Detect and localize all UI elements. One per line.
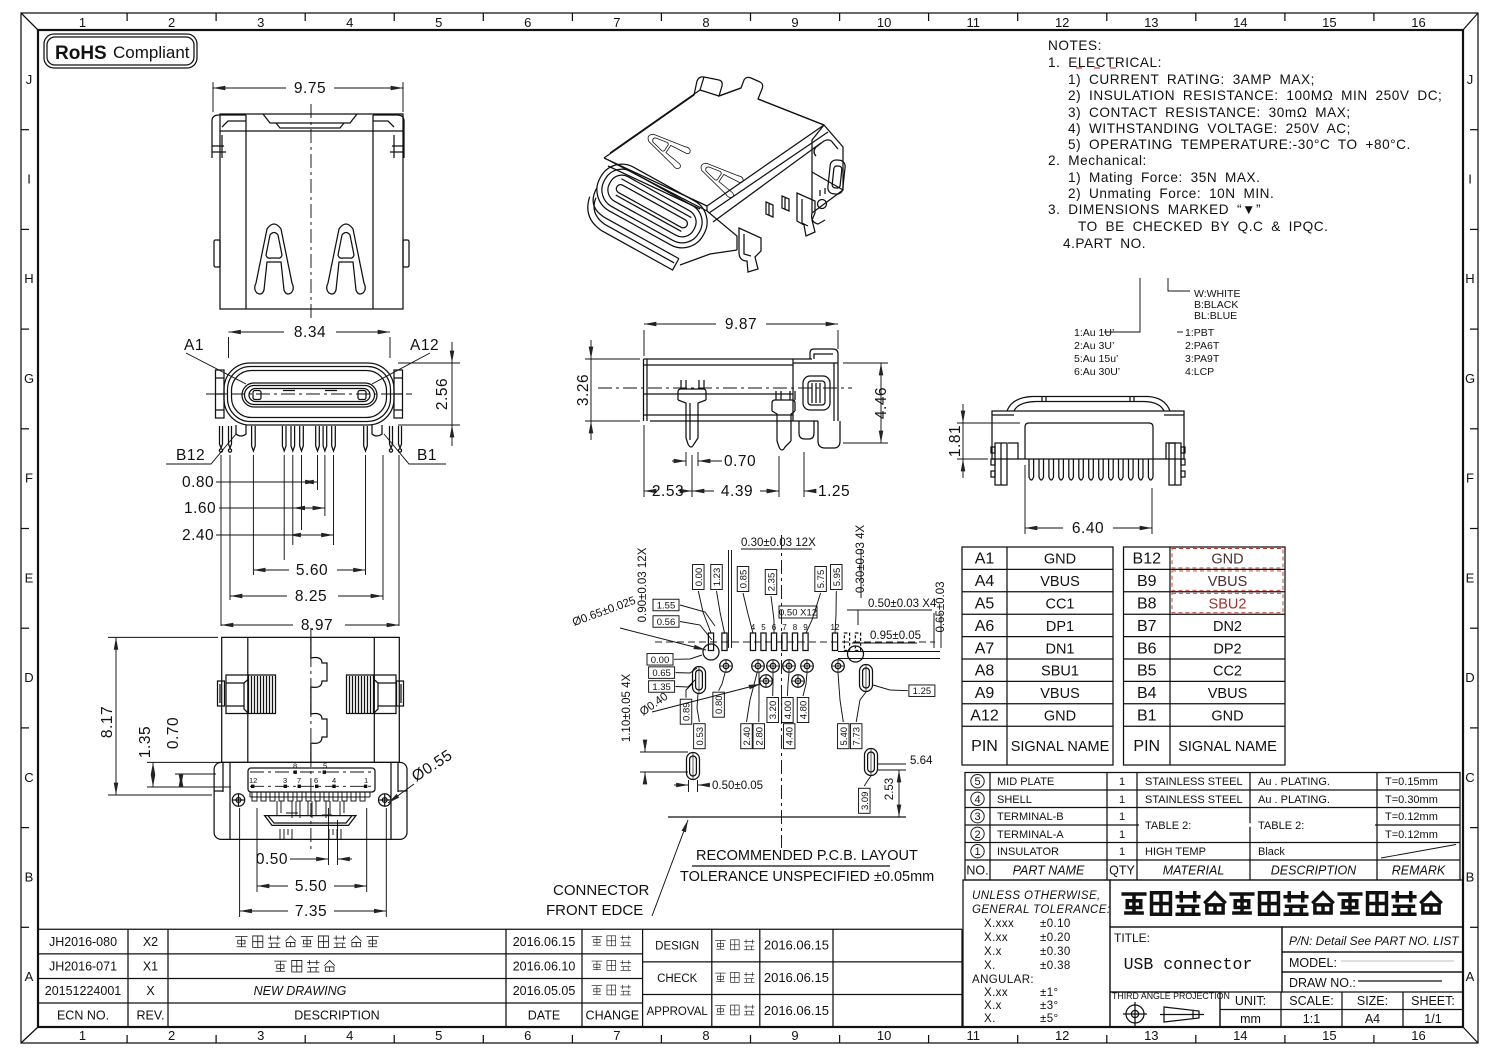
svg-text:B8: B8 — [1137, 596, 1157, 613]
svg-text:B1: B1 — [417, 447, 437, 464]
svg-text:4) WITHSTANDING VOLTAGE: 250V: 4) WITHSTANDING VOLTAGE: 250V AC; — [1068, 121, 1351, 136]
svg-text:CHANGE: CHANGE — [586, 1009, 639, 1023]
svg-text:0.00: 0.00 — [694, 568, 705, 587]
svg-text:5: 5 — [974, 776, 980, 788]
svg-text:FRONT EDCE: FRONT EDCE — [546, 902, 643, 919]
svg-text:UNLESS OTHERWISE,: UNLESS OTHERWISE, — [972, 890, 1101, 902]
svg-text:SIZE:: SIZE: — [1357, 994, 1388, 1008]
svg-text:PIN: PIN — [971, 738, 998, 755]
svg-text:0.65: 0.65 — [652, 668, 671, 679]
svg-text:RECOMMENDED P.C.B. LAYOUT: RECOMMENDED P.C.B. LAYOUT — [696, 848, 918, 864]
svg-text:3: 3 — [974, 811, 980, 823]
svg-text:ECN NO.: ECN NO. — [57, 1009, 109, 1023]
svg-text:P/N: Detail See PART NO. LIST: P/N: Detail See PART NO. LIST — [1289, 934, 1460, 948]
svg-text:HIGH TEMP: HIGH TEMP — [1145, 846, 1206, 858]
svg-text:Au . PLATING.: Au . PLATING. — [1258, 794, 1330, 806]
svg-text:9.75: 9.75 — [294, 80, 326, 97]
svg-text:B: B — [25, 870, 34, 885]
svg-text:8: 8 — [702, 1028, 709, 1043]
svg-text:T=0.15mm: T=0.15mm — [1385, 776, 1438, 788]
svg-text:8.97: 8.97 — [301, 617, 333, 634]
svg-text:1.35: 1.35 — [137, 726, 154, 758]
svg-text:7.73: 7.73 — [852, 727, 863, 746]
svg-text:0.95±0.05: 0.95±0.05 — [870, 630, 921, 642]
svg-text:G: G — [1465, 371, 1475, 386]
svg-text:11: 11 — [966, 15, 980, 30]
svg-text:5.60: 5.60 — [296, 562, 328, 579]
svg-text:3: 3 — [257, 1028, 264, 1043]
svg-text:0.56: 0.56 — [657, 617, 676, 628]
svg-text:1:Au 1U’: 1:Au 1U’ — [1074, 327, 1114, 339]
svg-text:1: 1 — [1119, 776, 1125, 788]
svg-text:THIRD ANGLE PROJECTION: THIRD ANGLE PROJECTION — [1112, 991, 1230, 1001]
svg-text:DATE: DATE — [528, 1009, 560, 1023]
svg-text:REV.: REV. — [136, 1009, 164, 1023]
svg-text:DN2: DN2 — [1213, 619, 1242, 635]
svg-text:GND: GND — [1211, 552, 1243, 568]
svg-text:GND: GND — [1211, 709, 1243, 725]
svg-text:USB connector: USB connector — [1124, 955, 1253, 974]
svg-text:0.50 X12: 0.50 X12 — [779, 608, 817, 619]
svg-text:16: 16 — [1411, 15, 1425, 30]
svg-text:VBUS: VBUS — [1040, 574, 1080, 590]
svg-text:3:PA9T: 3:PA9T — [1185, 353, 1220, 365]
svg-text:2016.06.15: 2016.06.15 — [764, 970, 829, 985]
svg-text:2.80: 2.80 — [754, 727, 765, 746]
svg-text:0.50: 0.50 — [256, 851, 288, 868]
svg-text:4.46: 4.46 — [873, 387, 890, 419]
svg-text:4:LCP: 4:LCP — [1185, 366, 1214, 378]
svg-text:X.xxx: X.xxx — [984, 918, 1014, 930]
svg-text:1:PBT: 1:PBT — [1185, 327, 1215, 339]
svg-text:4.80: 4.80 — [799, 701, 810, 720]
svg-text:TOLERANCE UNSPECIFIED ±0.05mm: TOLERANCE UNSPECIFIED ±0.05mm — [680, 869, 934, 885]
svg-text:TERMINAL-A: TERMINAL-A — [997, 829, 1064, 841]
svg-text:5: 5 — [761, 623, 766, 632]
svg-text:GND: GND — [1044, 552, 1076, 568]
svg-text:T=0.30mm: T=0.30mm — [1385, 794, 1438, 806]
svg-text:5) OPERATING TEMPERATURE:-30°C: 5) OPERATING TEMPERATURE:-30°C TO +80°C. — [1068, 137, 1411, 152]
svg-text:2:PA6T: 2:PA6T — [1185, 340, 1220, 352]
svg-text:A7: A7 — [975, 640, 995, 657]
svg-text:4: 4 — [332, 776, 336, 785]
svg-text:I: I — [27, 172, 31, 187]
svg-text:1: 1 — [1119, 846, 1125, 858]
svg-text:±0.10: ±0.10 — [1040, 918, 1071, 930]
svg-text:REMARK: REMARK — [1392, 864, 1446, 878]
svg-text:±0.38: ±0.38 — [1040, 960, 1071, 972]
svg-text:4: 4 — [346, 1028, 353, 1043]
svg-text:7.35: 7.35 — [295, 903, 327, 920]
svg-text:E: E — [25, 570, 34, 585]
svg-text:SBU2: SBU2 — [1209, 597, 1247, 613]
svg-text:ANGULAR:: ANGULAR: — [972, 974, 1034, 986]
svg-text:T=0.12mm: T=0.12mm — [1385, 829, 1438, 841]
svg-text:TO BE CHECKED BY Q.C & IPQC.: TO BE CHECKED BY Q.C & IPQC. — [1078, 219, 1328, 234]
svg-text:6: 6 — [524, 15, 531, 30]
svg-text:JH2016-071: JH2016-071 — [49, 960, 117, 974]
svg-text:B: B — [1466, 870, 1475, 885]
svg-text:CC1: CC1 — [1045, 597, 1074, 613]
svg-text:A5: A5 — [975, 596, 995, 613]
svg-text:H: H — [1465, 271, 1474, 286]
svg-text:9.87: 9.87 — [725, 316, 757, 333]
svg-text:9: 9 — [791, 1028, 798, 1043]
svg-text:0.30±0.03 12X: 0.30±0.03 12X — [741, 537, 816, 549]
svg-text:6:Au 30U’: 6:Au 30U’ — [1074, 366, 1120, 378]
svg-text:6.40: 6.40 — [1072, 520, 1104, 537]
svg-text:5: 5 — [435, 15, 442, 30]
svg-text:DESIGN: DESIGN — [655, 941, 699, 953]
svg-text:±0.20: ±0.20 — [1040, 932, 1071, 944]
svg-text:7: 7 — [297, 776, 301, 785]
svg-text:0.50±0.05: 0.50±0.05 — [712, 780, 763, 792]
svg-text:X.x: X.x — [984, 946, 1002, 958]
svg-text:CHECK: CHECK — [657, 973, 698, 985]
svg-text:X.xx: X.xx — [984, 932, 1008, 944]
svg-text:±3°: ±3° — [1040, 1000, 1059, 1012]
svg-text:TABLE 2:: TABLE 2: — [1145, 820, 1191, 832]
svg-text:DP2: DP2 — [1213, 641, 1241, 657]
svg-text:4.39: 4.39 — [721, 483, 753, 500]
svg-text:1: 1 — [1119, 829, 1125, 841]
svg-text:CC2: CC2 — [1213, 664, 1242, 680]
svg-text:12: 12 — [1055, 1028, 1069, 1043]
svg-text:SBU1: SBU1 — [1041, 664, 1079, 680]
svg-text:A12: A12 — [970, 708, 999, 725]
svg-text:Black: Black — [1258, 846, 1285, 858]
svg-text:TERMINAL-B: TERMINAL-B — [997, 811, 1064, 823]
svg-text:8.25: 8.25 — [295, 588, 327, 605]
svg-text:STAINLESS STEEL: STAINLESS STEEL — [1145, 794, 1243, 806]
svg-text:PIN: PIN — [1133, 738, 1160, 755]
svg-text:GND: GND — [1044, 709, 1076, 725]
svg-text:MODEL:: MODEL: — [1289, 956, 1337, 970]
svg-text:X2: X2 — [143, 935, 158, 949]
svg-text:3: 3 — [257, 15, 264, 30]
svg-text:C: C — [24, 770, 33, 785]
svg-text:A: A — [25, 969, 34, 984]
svg-text:X.: X. — [984, 1013, 996, 1025]
svg-text:VBUS: VBUS — [1208, 574, 1248, 590]
svg-text:12: 12 — [1055, 15, 1069, 30]
svg-text:INSULATOR: INSULATOR — [997, 846, 1059, 858]
svg-text:DN1: DN1 — [1045, 641, 1074, 657]
svg-text:RoHS: RoHS — [55, 43, 107, 64]
svg-text:0.70: 0.70 — [724, 453, 756, 470]
svg-text:2.53: 2.53 — [884, 778, 896, 800]
svg-text:1: 1 — [364, 776, 368, 785]
svg-text:5: 5 — [323, 762, 327, 771]
svg-text:T=0.12mm: T=0.12mm — [1385, 811, 1438, 823]
svg-text:2.40: 2.40 — [182, 527, 214, 544]
svg-text:5.75: 5.75 — [816, 570, 827, 589]
svg-text:X.: X. — [984, 960, 996, 972]
svg-text:SIGNAL NAME: SIGNAL NAME — [1178, 739, 1277, 755]
svg-text:A8: A8 — [975, 663, 995, 680]
svg-text:Au . PLATING.: Au . PLATING. — [1258, 776, 1330, 788]
svg-text:5.64: 5.64 — [910, 755, 933, 767]
svg-text:4.PART NO.: 4.PART NO. — [1063, 236, 1146, 251]
svg-text:B12: B12 — [176, 447, 205, 464]
svg-text:10: 10 — [877, 1028, 891, 1043]
svg-text:1: 1 — [974, 846, 980, 858]
svg-text:2.56: 2.56 — [434, 378, 451, 410]
svg-text:0.00: 0.00 — [651, 655, 670, 666]
svg-text:I: I — [1468, 172, 1472, 187]
svg-text:±5°: ±5° — [1040, 1013, 1059, 1025]
svg-text:15: 15 — [1322, 15, 1336, 30]
svg-text:2: 2 — [168, 15, 175, 30]
svg-text:1/1: 1/1 — [1424, 1012, 1441, 1026]
svg-text:5.50: 5.50 — [295, 878, 327, 895]
svg-text:J: J — [1467, 72, 1474, 87]
svg-text:SHELL: SHELL — [997, 794, 1032, 806]
svg-text:F: F — [1466, 471, 1474, 486]
svg-text:1) CURRENT RATING: 3AMP MAX;: 1) CURRENT RATING: 3AMP MAX; — [1068, 72, 1315, 87]
svg-text:TITLE:: TITLE: — [1114, 931, 1150, 945]
svg-text:C: C — [1465, 770, 1474, 785]
svg-text:±0.30: ±0.30 — [1040, 946, 1071, 958]
svg-text:0.85: 0.85 — [739, 570, 750, 589]
svg-text:BL:BLUE: BL:BLUE — [1194, 310, 1237, 322]
svg-text:J: J — [26, 72, 33, 87]
svg-text:8.34: 8.34 — [294, 324, 326, 341]
svg-text:A1: A1 — [975, 551, 995, 568]
svg-text:A6: A6 — [975, 618, 995, 635]
svg-text:DESCRIPTION: DESCRIPTION — [1271, 864, 1357, 878]
svg-text:3) CONTACT RESISTANCE: 30mΩ MA: 3) CONTACT RESISTANCE: 30mΩ MAX; — [1068, 105, 1351, 120]
svg-text:3: 3 — [283, 776, 287, 785]
svg-text:TABLE 2:: TABLE 2: — [1258, 820, 1304, 832]
svg-text:1. ELECTRICAL:: 1. ELECTRICAL: — [1048, 55, 1162, 70]
svg-text:B12: B12 — [1133, 551, 1162, 568]
svg-text:8.17: 8.17 — [99, 706, 116, 738]
svg-text:2: 2 — [168, 1028, 175, 1043]
svg-text:±1°: ±1° — [1040, 987, 1059, 999]
svg-text:2:Au 3U’: 2:Au 3U’ — [1074, 340, 1114, 352]
svg-text:G: G — [24, 371, 34, 386]
svg-text:15: 15 — [1322, 1028, 1336, 1043]
svg-text:5.95: 5.95 — [832, 568, 843, 587]
svg-text:0.90±0.03 12X: 0.90±0.03 12X — [637, 547, 649, 622]
svg-text:A: A — [1466, 969, 1475, 984]
svg-text:10: 10 — [877, 15, 891, 30]
svg-text:2016.06.15: 2016.06.15 — [513, 935, 576, 949]
svg-text:2016.05.05: 2016.05.05 — [513, 984, 576, 998]
svg-text:DESCRIPTION: DESCRIPTION — [294, 1009, 379, 1023]
svg-text:X.x: X.x — [984, 1000, 1002, 1012]
svg-text:8: 8 — [293, 762, 297, 771]
svg-text:VBUS: VBUS — [1040, 686, 1080, 702]
svg-text:D: D — [1465, 670, 1474, 685]
svg-text:A9: A9 — [975, 685, 995, 702]
svg-text:VBUS: VBUS — [1208, 686, 1248, 702]
svg-text:SHEET:: SHEET: — [1411, 994, 1455, 1008]
svg-text:MATERIAL: MATERIAL — [1163, 864, 1225, 878]
svg-text:0.53: 0.53 — [695, 727, 706, 746]
svg-text:3.26: 3.26 — [575, 374, 592, 406]
svg-text:B9: B9 — [1137, 573, 1157, 590]
svg-text:11: 11 — [966, 1028, 980, 1043]
svg-text:13: 13 — [1144, 1028, 1158, 1043]
svg-text:1: 1 — [79, 15, 86, 30]
svg-text:2.35: 2.35 — [767, 573, 778, 592]
svg-text:1.81: 1.81 — [947, 425, 964, 457]
svg-text:2. Mechanical:: 2. Mechanical: — [1048, 153, 1147, 168]
svg-text:B5: B5 — [1137, 663, 1157, 680]
svg-text:B4: B4 — [1137, 685, 1157, 702]
svg-text:NO.: NO. — [966, 864, 988, 878]
svg-text:8: 8 — [702, 15, 709, 30]
svg-text:6: 6 — [524, 1028, 531, 1043]
svg-text:A12: A12 — [410, 337, 439, 354]
svg-text:JH2016-080: JH2016-080 — [49, 935, 117, 949]
svg-text:X: X — [146, 984, 155, 998]
svg-text:A4: A4 — [975, 573, 995, 590]
svg-text:6: 6 — [314, 776, 318, 785]
svg-text:D: D — [24, 670, 33, 685]
svg-text:5: 5 — [435, 1028, 442, 1043]
svg-text:1:1: 1:1 — [1303, 1012, 1320, 1026]
svg-text:2.53: 2.53 — [652, 483, 684, 500]
svg-text:2: 2 — [974, 829, 980, 841]
svg-text:4.00: 4.00 — [783, 701, 794, 720]
svg-text:1.10±0.05 4X: 1.10±0.05 4X — [621, 674, 633, 743]
svg-text:2) Unmating Force: 10N MIN.: 2) Unmating Force: 10N MIN. — [1068, 186, 1274, 201]
svg-text:9: 9 — [791, 15, 798, 30]
svg-text:E: E — [1466, 570, 1475, 585]
svg-text:B6: B6 — [1137, 640, 1157, 657]
svg-text:1.23: 1.23 — [712, 568, 723, 587]
svg-text:3. DIMENSIONS MARKED “▼”: 3. DIMENSIONS MARKED “▼” — [1048, 202, 1261, 217]
svg-text:NEW DRAWING: NEW DRAWING — [254, 984, 347, 998]
svg-text:A1: A1 — [184, 337, 204, 354]
svg-text:1.25: 1.25 — [913, 686, 932, 697]
svg-text:16: 16 — [1411, 1028, 1425, 1043]
svg-text:X1: X1 — [143, 960, 158, 974]
svg-text:2.40: 2.40 — [742, 727, 753, 746]
svg-text:3.09: 3.09 — [860, 792, 871, 811]
svg-text:QTY: QTY — [1109, 864, 1135, 878]
svg-text:0.89: 0.89 — [682, 702, 693, 721]
svg-text:2016.06.15: 2016.06.15 — [764, 1003, 829, 1018]
svg-text:8: 8 — [793, 623, 798, 632]
svg-text:1.60: 1.60 — [184, 500, 216, 517]
svg-text:STAINLESS STEEL: STAINLESS STEEL — [1145, 776, 1243, 788]
svg-text:7: 7 — [613, 15, 620, 30]
svg-text:0.80: 0.80 — [182, 474, 214, 491]
svg-text:NOTES:: NOTES: — [1048, 38, 1102, 53]
svg-text:5.40: 5.40 — [839, 727, 850, 746]
svg-text:A4: A4 — [1365, 1012, 1380, 1026]
svg-text:20151224001: 20151224001 — [45, 984, 122, 998]
svg-text:0.80: 0.80 — [714, 695, 725, 714]
svg-text:1.55: 1.55 — [657, 601, 676, 612]
svg-text:CONNECTOR: CONNECTOR — [553, 882, 650, 899]
svg-text:14: 14 — [1233, 15, 1247, 30]
svg-text:SCALE:: SCALE: — [1289, 994, 1333, 1008]
svg-text:12: 12 — [249, 776, 257, 785]
svg-text:14: 14 — [1233, 1028, 1247, 1043]
svg-text:APPROVAL: APPROVAL — [647, 1006, 709, 1018]
svg-text:4: 4 — [346, 15, 353, 30]
svg-text:DRAW NO.:: DRAW NO.: — [1289, 976, 1356, 990]
svg-text:0.50±0.03 X4: 0.50±0.03 X4 — [868, 598, 937, 610]
svg-text:MID PLATE: MID PLATE — [997, 776, 1054, 788]
svg-text:B1: B1 — [1137, 708, 1157, 725]
svg-text:1: 1 — [1119, 794, 1125, 806]
svg-text:F: F — [25, 471, 33, 486]
svg-text:H: H — [24, 271, 33, 286]
svg-text:B7: B7 — [1137, 618, 1157, 635]
svg-text:1.25: 1.25 — [818, 483, 850, 500]
svg-text:4: 4 — [974, 794, 980, 806]
svg-text:5:Au 15u’: 5:Au 15u’ — [1074, 353, 1118, 365]
svg-text:7: 7 — [782, 623, 787, 632]
svg-text:X.xx: X.xx — [984, 987, 1008, 999]
svg-text:2) INSULATION RESISTANCE: 100M: 2) INSULATION RESISTANCE: 100MΩ MIN 250V… — [1068, 88, 1442, 103]
svg-text:PART NAME: PART NAME — [1013, 864, 1085, 878]
svg-text:SIGNAL NAME: SIGNAL NAME — [1011, 739, 1110, 755]
svg-text:2016.06.15: 2016.06.15 — [764, 938, 829, 953]
svg-text:1: 1 — [1119, 811, 1125, 823]
svg-text:7: 7 — [613, 1028, 620, 1043]
svg-text:GENERAL TOLERANCE:: GENERAL TOLERANCE: — [972, 904, 1110, 916]
svg-text:1: 1 — [79, 1028, 86, 1043]
svg-text:2016.06.10: 2016.06.10 — [513, 960, 576, 974]
svg-text:4.40: 4.40 — [785, 727, 796, 746]
svg-text:mm: mm — [1240, 1012, 1261, 1026]
svg-text:Compliant: Compliant — [113, 43, 190, 62]
svg-text:1) Mating Force: 35N MAX.: 1) Mating Force: 35N MAX. — [1068, 170, 1260, 185]
svg-text:13: 13 — [1144, 15, 1158, 30]
svg-text:3.20: 3.20 — [768, 701, 779, 720]
svg-text:UNIT:: UNIT: — [1235, 994, 1266, 1008]
svg-text:DP1: DP1 — [1046, 619, 1074, 635]
svg-text:0.70: 0.70 — [165, 717, 182, 749]
